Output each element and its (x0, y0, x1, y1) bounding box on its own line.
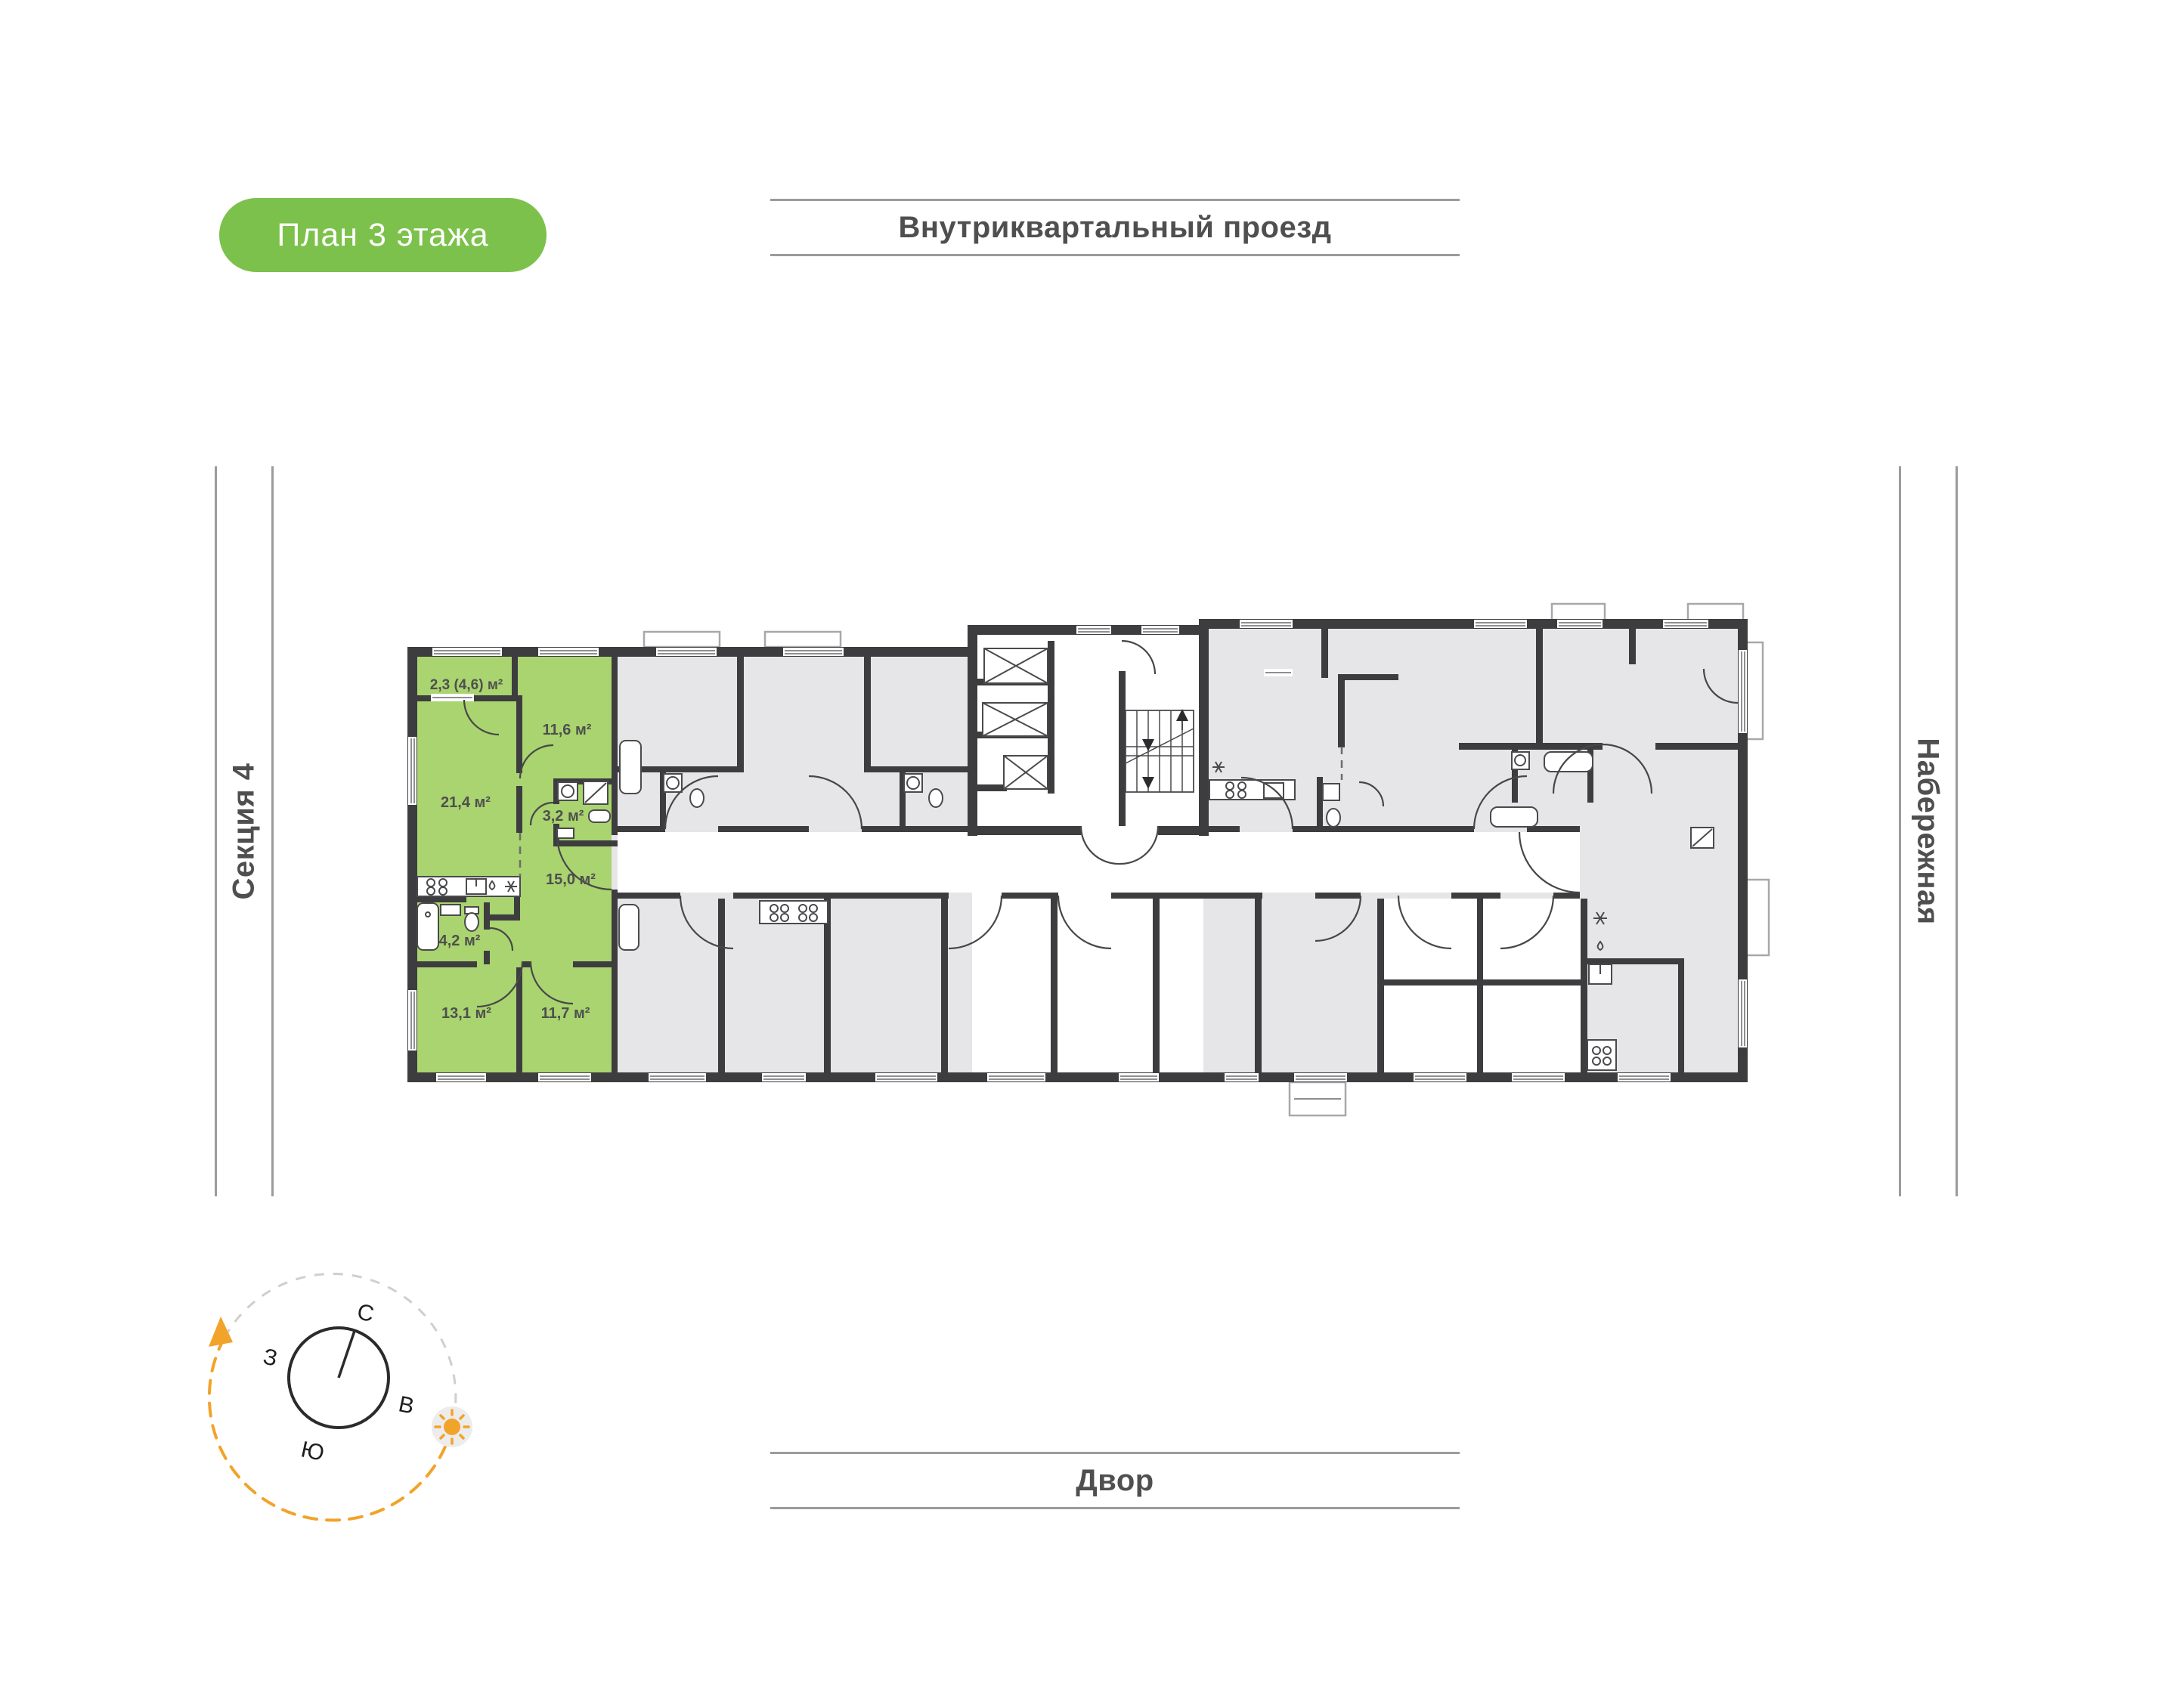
room-label-bedroom-top: 11,6 м² (543, 722, 592, 738)
elevator-shaft-icon (984, 648, 1048, 683)
compass-east: В (396, 1391, 416, 1419)
room-label-bedroom-left: 13,1 м² (441, 1005, 491, 1022)
room-label-hallway: 15,0 м² (546, 871, 596, 888)
compass: С З В Ю (209, 1273, 472, 1520)
elevator-shaft-icon (983, 703, 1048, 736)
room-label-bedroom-right: 11,7 м² (541, 1005, 590, 1022)
compass-north: С (355, 1299, 376, 1327)
compass-west: З (261, 1344, 280, 1372)
room-label-bathroom: 4,2 м² (439, 933, 481, 949)
sun-icon (435, 1410, 469, 1443)
room-label-living: 21,4 м² (441, 794, 491, 811)
compass-south: Ю (299, 1437, 327, 1466)
plan-canvas: 2,3 (4,6) м² 11,6 м² 21,4 м² 3,2 м² 15,0… (0, 0, 2177, 1708)
floor-plan-page: План 3 этажа Внутриквартальный проезд Дв… (0, 0, 2177, 1708)
room-label-bath-small: 3,2 м² (543, 808, 584, 825)
elevator-shaft-icon (1004, 756, 1048, 789)
room-label-balcony: 2,3 (4,6) м² (430, 677, 503, 693)
